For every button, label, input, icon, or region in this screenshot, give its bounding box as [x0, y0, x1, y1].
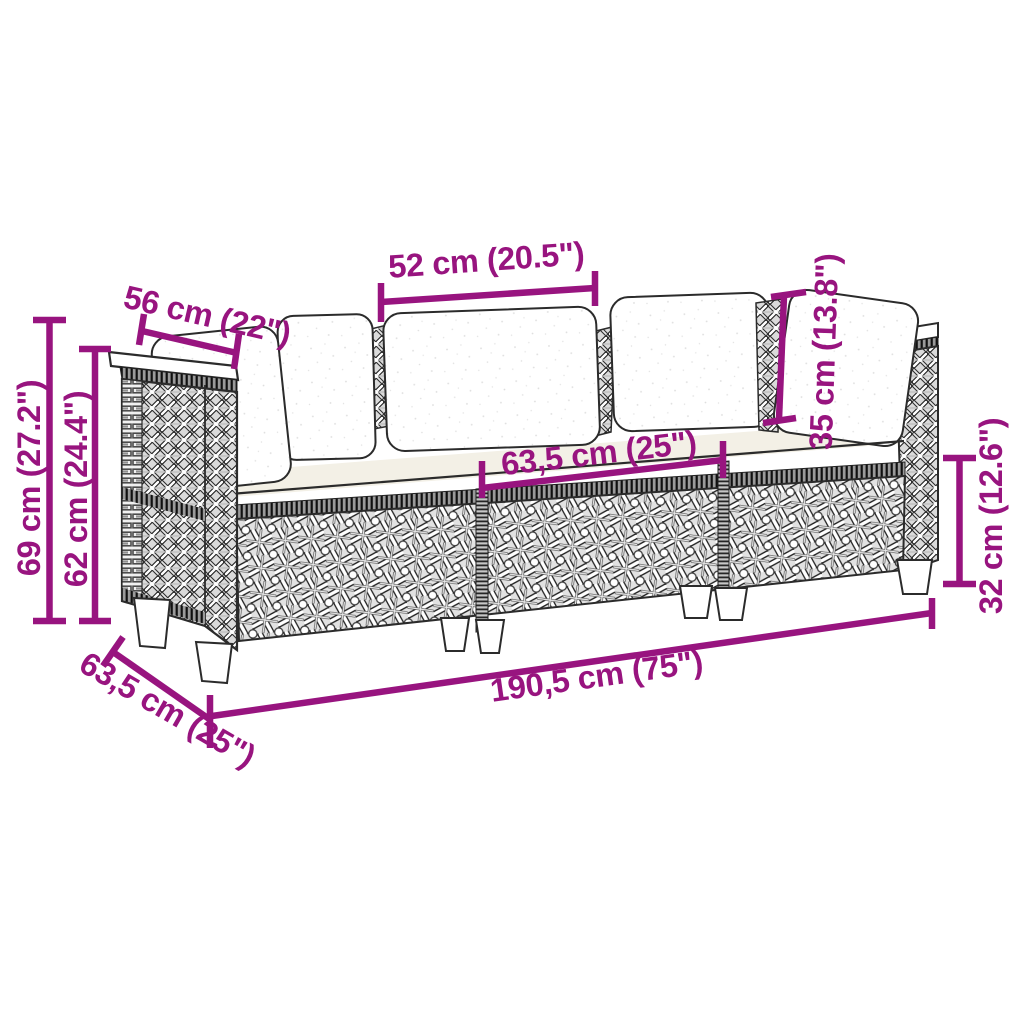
svg-text:62 cm (24.4"): 62 cm (24.4") [58, 391, 94, 587]
svg-text:69 cm (27.2"): 69 cm (27.2") [11, 380, 47, 576]
svg-text:32 cm (12.6"): 32 cm (12.6") [973, 418, 1009, 614]
svg-text:35 cm (13.8"): 35 cm (13.8") [803, 253, 846, 450]
